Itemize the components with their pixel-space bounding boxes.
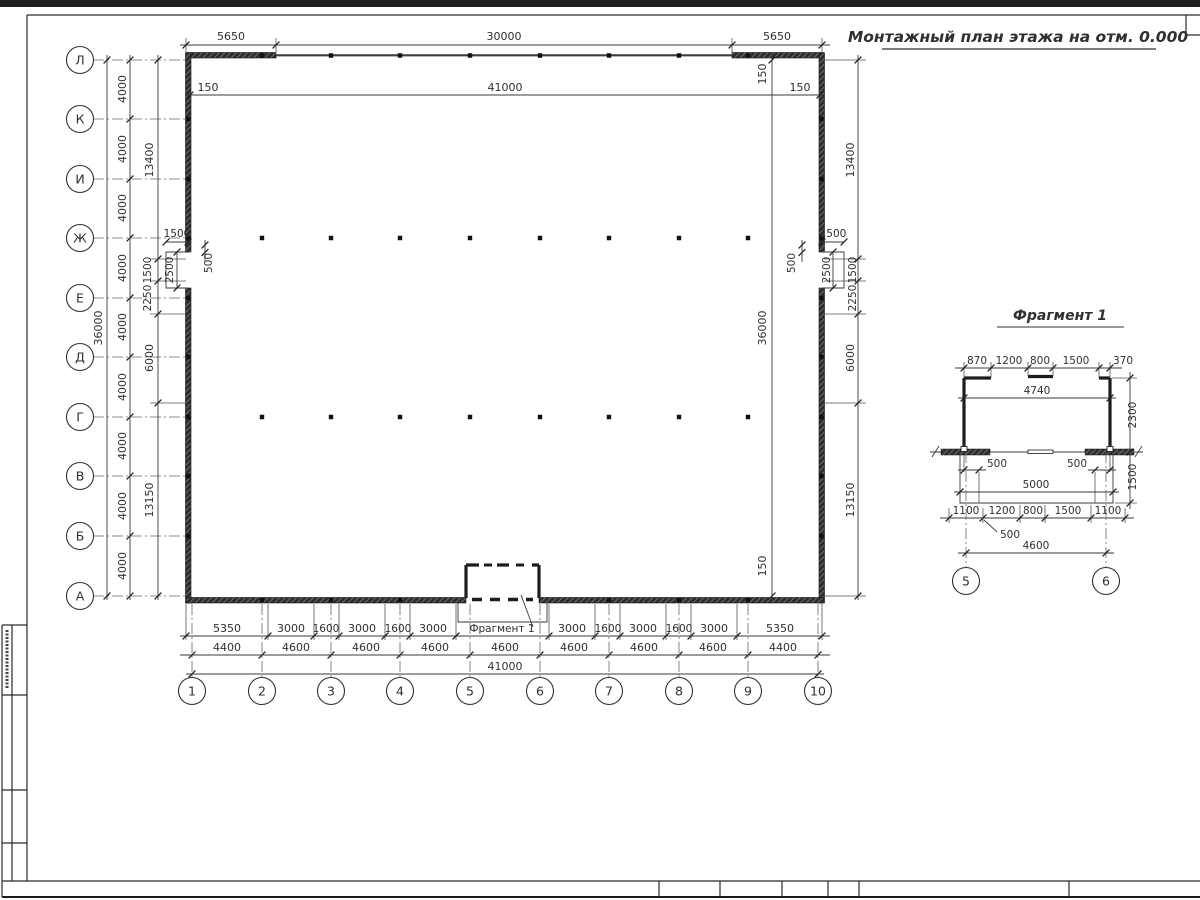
dim-label: 1500 <box>1127 464 1139 491</box>
axis-col-label: 6 <box>536 684 544 699</box>
dim-label: 3000 <box>629 622 657 635</box>
dim-label: 4600 <box>699 641 727 654</box>
dim-label: 3000 <box>419 622 447 635</box>
dim-label: 4600 <box>352 641 380 654</box>
sheet-background <box>0 0 1200 900</box>
dim-label: 5650 <box>763 30 791 43</box>
dim-label: 3000 <box>277 622 305 635</box>
dim-label: 41000 <box>488 660 523 673</box>
fragment-center-sill <box>1028 450 1053 454</box>
dim-label: 1500 <box>1055 505 1082 517</box>
axis-col-label: 7 <box>605 684 613 699</box>
axis-row-label: В <box>76 469 85 484</box>
dim-label: 4000 <box>116 135 129 163</box>
dim-label: 500 <box>203 253 215 273</box>
drawing-title: Монтажный план этажа на отм. 0.000 <box>848 28 1189 46</box>
axis-row-label: Е <box>76 291 84 306</box>
fragment-column-base-right <box>1107 447 1113 452</box>
dim-label: 3000 <box>558 622 586 635</box>
dim-label: 1600 <box>666 623 693 635</box>
dim-label: 4000 <box>116 492 129 520</box>
fragment-callout: Фрагмент 1 <box>469 623 534 635</box>
axis-row-label: Л <box>75 53 84 68</box>
dim-label: 500 <box>987 458 1007 470</box>
dim-label: 1500 <box>1063 355 1090 367</box>
dim-label: 370 <box>1113 355 1133 367</box>
dim-label: 13400 <box>143 143 156 178</box>
axis-row-label: А <box>76 589 85 604</box>
wall-right-lower <box>819 288 825 603</box>
dim-label: 30000 <box>487 30 522 43</box>
axis-col-label: 5 <box>962 574 970 589</box>
axis-col-label: 4 <box>396 684 404 699</box>
dim-label: 1500 <box>164 228 191 240</box>
dim-label: 4600 <box>630 641 658 654</box>
dim-label: 500 <box>786 253 798 273</box>
axis-row-label: Ж <box>73 231 87 246</box>
dim-label: 4000 <box>116 552 129 580</box>
dim-label: 2250 <box>847 285 859 312</box>
axis-col-label: 10 <box>810 684 826 699</box>
axis-row-label: Д <box>75 350 85 365</box>
axis-col-label: 6 <box>1102 574 1110 589</box>
dim-label: 6000 <box>844 344 857 372</box>
dim-label: 150 <box>756 556 769 577</box>
sheet-top-edge <box>0 0 1200 7</box>
fragment-column-base-left <box>961 447 967 452</box>
wall-right-upper <box>819 53 825 252</box>
dim-label: 5350 <box>766 622 794 635</box>
axis-col-label: 2 <box>258 684 266 699</box>
dim-label: 1200 <box>996 355 1023 367</box>
dim-label: 1500 <box>820 228 847 240</box>
dim-label: 4400 <box>213 641 241 654</box>
drawing-canvas: Монтажный план этажа на отм. 0.000 <box>0 0 1200 900</box>
dim-label: 4600 <box>491 641 519 654</box>
dim-label: 150 <box>198 81 219 94</box>
drawing-header: Монтажный план этажа на отм. 0.000 <box>848 28 1189 49</box>
dim-label: 800 <box>1023 505 1043 517</box>
wall-bottom-right <box>539 598 824 604</box>
dim-label: 4600 <box>560 641 588 654</box>
dim-label: 36000 <box>756 311 769 346</box>
dim-label: 5650 <box>217 30 245 43</box>
dim-label: 13400 <box>844 143 857 178</box>
axis-col-label: 5 <box>466 684 474 699</box>
dim-label: 3000 <box>348 622 376 635</box>
dim-label: 4000 <box>116 75 129 103</box>
dim-label: 5350 <box>213 622 241 635</box>
dim-label: 4600 <box>282 641 310 654</box>
dim-label: 3000 <box>700 622 728 635</box>
dim-label: 4000 <box>116 373 129 401</box>
dim-label: 1100 <box>1095 505 1122 517</box>
dim-label: 36000 <box>92 311 105 346</box>
axis-row-label: Б <box>76 529 85 544</box>
dim-label: 41000 <box>488 81 523 94</box>
axis-row-label: И <box>75 172 84 187</box>
dim-label: 4600 <box>421 641 449 654</box>
dim-label: 13150 <box>143 483 156 518</box>
dim-label: 6000 <box>143 344 156 372</box>
dim-label: 2300 <box>1127 402 1139 429</box>
dim-label: 4000 <box>116 313 129 341</box>
axis-row-label: К <box>76 112 85 127</box>
dim-label: 800 <box>1030 355 1050 367</box>
dim-label: 1600 <box>313 623 340 635</box>
dim-label: 870 <box>967 355 987 367</box>
dim-label: 2500 <box>164 257 176 284</box>
dim-label: 4740 <box>1024 385 1051 397</box>
dim-label: 4000 <box>116 194 129 222</box>
dim-label: 4600 <box>1023 540 1050 552</box>
dim-label: 1600 <box>595 623 622 635</box>
axis-row-label: Г <box>76 410 84 425</box>
wall-left-upper <box>186 53 192 252</box>
dim-label: 150 <box>790 81 811 94</box>
dim-label: 500 <box>1067 458 1087 470</box>
dim-label: 2500 <box>821 257 833 284</box>
dim-label: 1500 <box>847 257 859 284</box>
sheet-frame <box>0 0 1200 900</box>
dim-label: 1500 <box>142 257 154 284</box>
wall-left-lower <box>186 288 192 603</box>
dim-label: 1600 <box>385 623 412 635</box>
axis-col-label: 8 <box>675 684 683 699</box>
fragment-title: Фрагмент 1 <box>1013 308 1107 324</box>
dim-label: 150 <box>756 64 769 85</box>
axis-col-label: 1 <box>188 684 196 699</box>
axis-col-label: 9 <box>744 684 752 699</box>
dim-label: 4400 <box>769 641 797 654</box>
dim-label: 4000 <box>116 432 129 460</box>
dim-label: 500 <box>1000 529 1020 541</box>
dim-label: 4000 <box>116 254 129 282</box>
wall-bottom-left <box>186 598 466 604</box>
dim-label: 1200 <box>989 505 1016 517</box>
dim-label: 5000 <box>1023 479 1050 491</box>
axis-col-label: 3 <box>327 684 335 699</box>
dim-label: 13150 <box>844 483 857 518</box>
dim-label: 2250 <box>142 285 154 312</box>
